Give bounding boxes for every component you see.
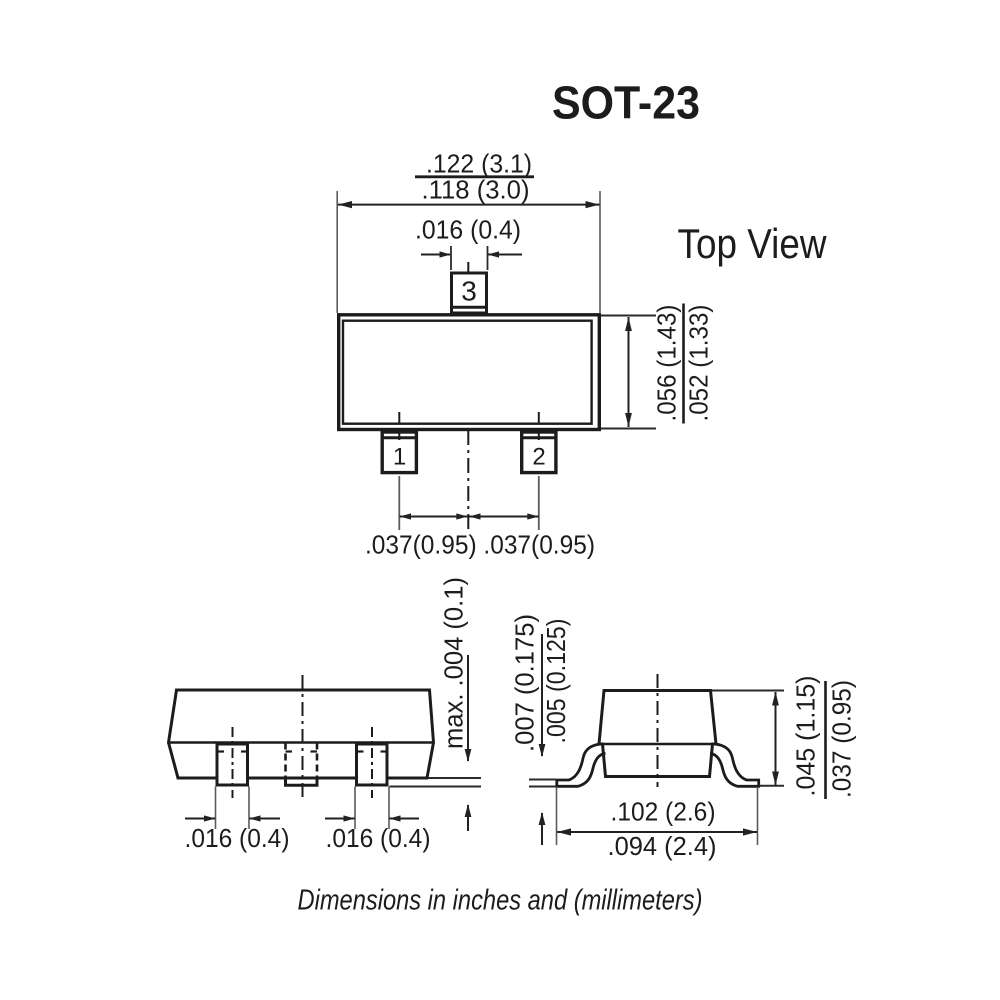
- svg-text:1: 1: [393, 444, 406, 471]
- svg-text:.016 (0.4): .016 (0.4): [326, 825, 431, 853]
- svg-text:.122 (3.1): .122 (3.1): [426, 151, 532, 179]
- svg-text:.016 (0.4): .016 (0.4): [185, 825, 290, 853]
- svg-text:.005 (0.125): .005 (0.125): [543, 619, 571, 744]
- svg-text:.037(0.95) .037(0.95): .037(0.95) .037(0.95): [365, 532, 595, 560]
- svg-text:.056 (1.43): .056 (1.43): [654, 305, 682, 422]
- svg-text:.045 (1.15): .045 (1.15): [793, 676, 821, 797]
- svg-text:.102 (2.6): .102 (2.6): [611, 799, 716, 827]
- svg-text:Dimensions in inches and (mill: Dimensions in inches and (millimeters): [298, 885, 703, 917]
- svg-text:SOT-23: SOT-23: [552, 77, 700, 129]
- svg-text:Top View: Top View: [678, 220, 828, 267]
- svg-text:2: 2: [532, 444, 545, 471]
- svg-text:max. .004 (0.1): max. .004 (0.1): [441, 577, 469, 749]
- svg-text:.016 (0.4): .016 (0.4): [415, 217, 521, 245]
- svg-text:.007 (0.175): .007 (0.175): [512, 614, 540, 752]
- svg-text:.037 (0.95): .037 (0.95): [829, 680, 857, 798]
- svg-text:.094 (2.4): .094 (2.4): [608, 833, 717, 861]
- svg-text:.052 (1.33): .052 (1.33): [686, 305, 714, 422]
- svg-text:3: 3: [461, 276, 477, 307]
- svg-text:.118 (3.0): .118 (3.0): [422, 177, 530, 205]
